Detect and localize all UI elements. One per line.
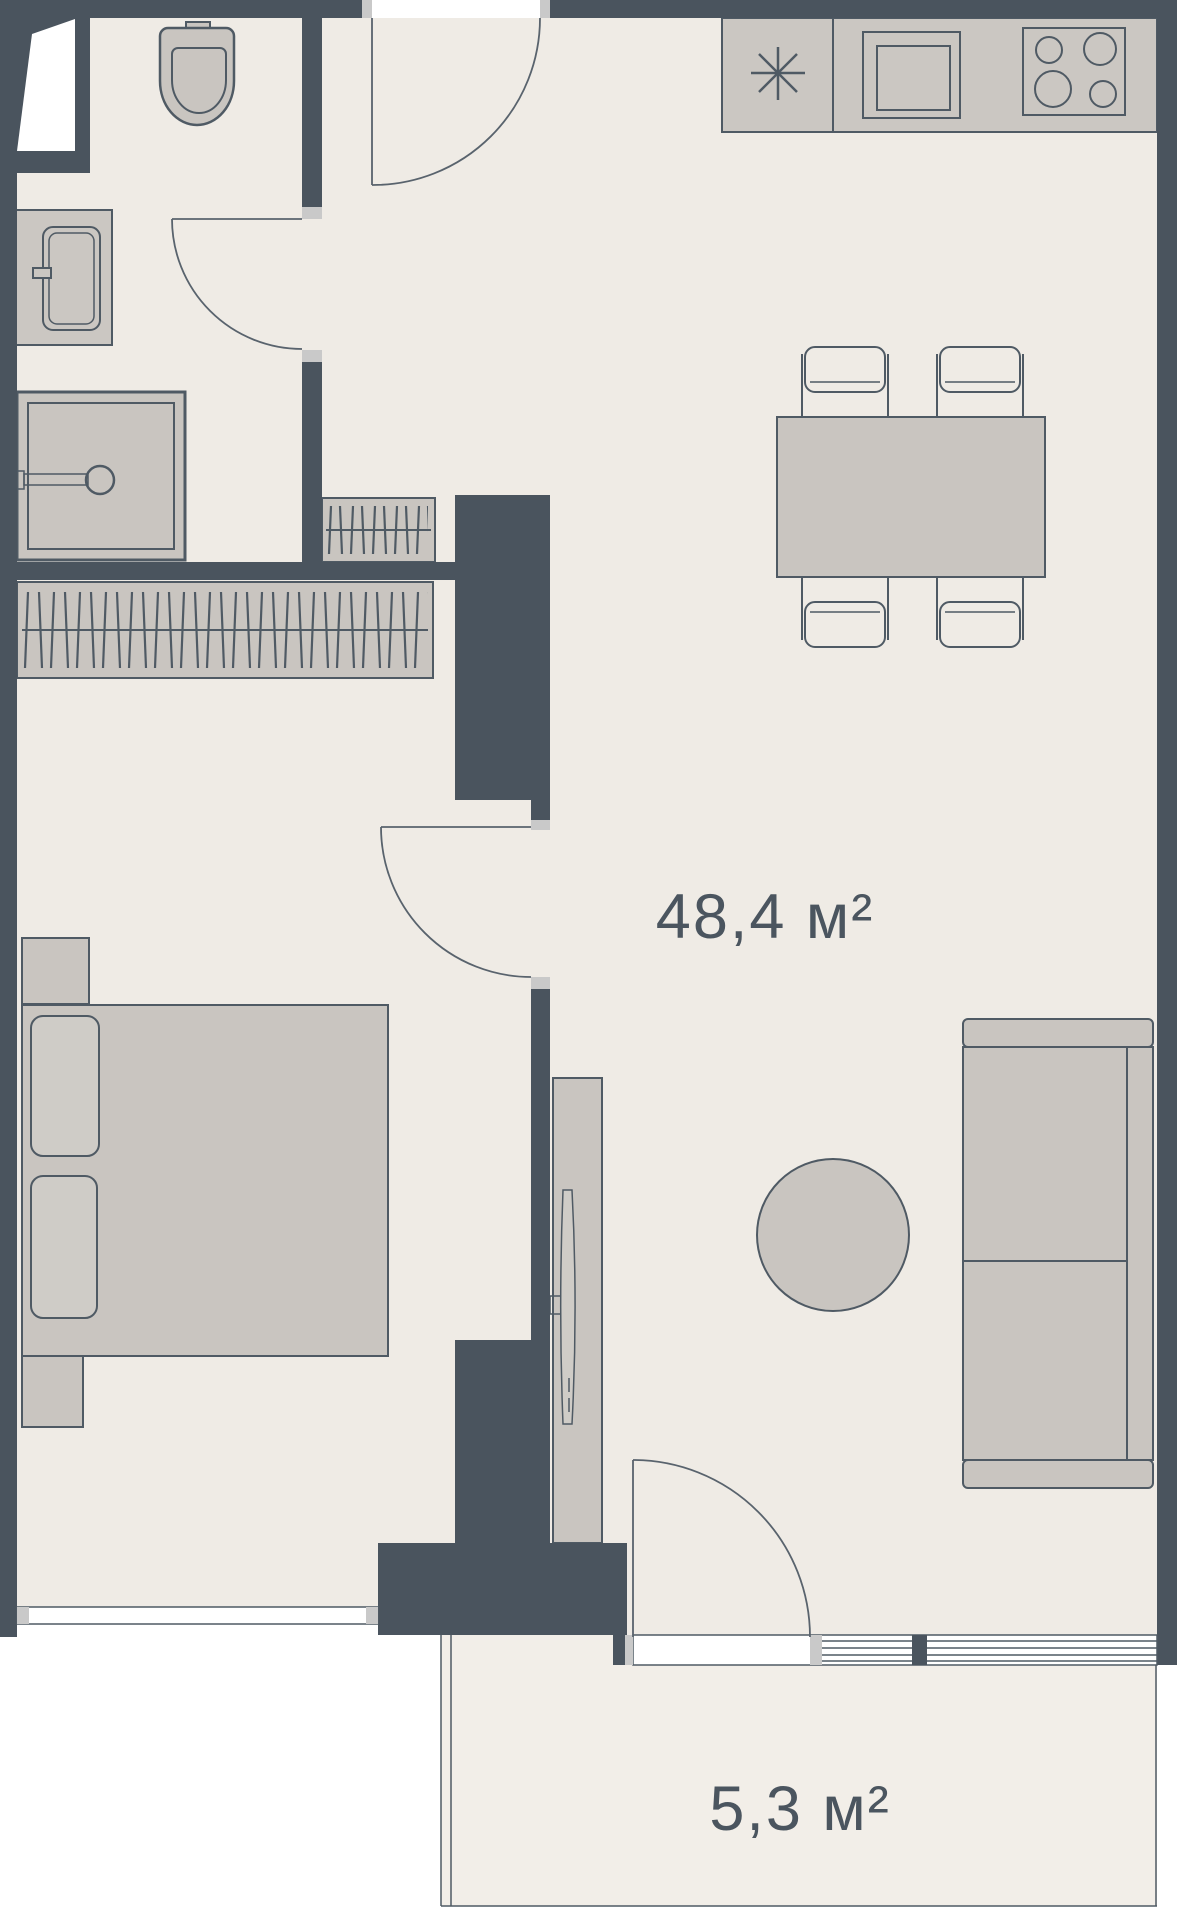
bottom-block: [378, 1543, 627, 1635]
tv-icon: [561, 1190, 575, 1424]
nightstand: [22, 938, 89, 1004]
kitchen-counter: [722, 18, 1157, 132]
floor-plan: 48,4 м² 5,3 м²: [0, 0, 1177, 1920]
balcony-window-railing: [625, 1635, 1157, 1665]
bathroom-wall-upper: [302, 18, 322, 207]
right-wall: [1157, 18, 1177, 1625]
coffee-table: [757, 1159, 909, 1311]
pillow: [31, 1016, 99, 1156]
nightstand: [22, 1356, 83, 1427]
hall-wall: [17, 562, 455, 580]
wardrobe-hangers-small: [322, 498, 435, 562]
left-wall: [0, 173, 17, 1637]
sofa: [963, 1019, 1153, 1488]
shower-icon: [14, 392, 185, 560]
bottom-right-corner: [1157, 1625, 1177, 1665]
bathroom-wall-lower: [302, 362, 322, 562]
wardrobe-hangers-large: [17, 582, 433, 678]
tv-console: [550, 1078, 602, 1543]
balcony-floor: [441, 1635, 1157, 1906]
column-sliver: [531, 800, 550, 820]
dining-table: [777, 417, 1045, 577]
pillow: [31, 1176, 97, 1318]
fridge-asterisk-symbol: [751, 47, 805, 100]
top-wall-left: [0, 0, 362, 18]
balcony-area-label: 5,3 м²: [709, 1774, 890, 1844]
toilet-icon: [160, 22, 234, 125]
main-area-label: 48,4 м²: [656, 882, 874, 952]
bedroom-window: [17, 1607, 378, 1624]
lower-column: [455, 1340, 550, 1543]
column: [455, 495, 550, 800]
bedroom-wall: [531, 989, 550, 1340]
washing-machine-icon: [15, 210, 112, 345]
railing-mullion: [912, 1635, 927, 1665]
top-wall-right: [550, 0, 1177, 18]
